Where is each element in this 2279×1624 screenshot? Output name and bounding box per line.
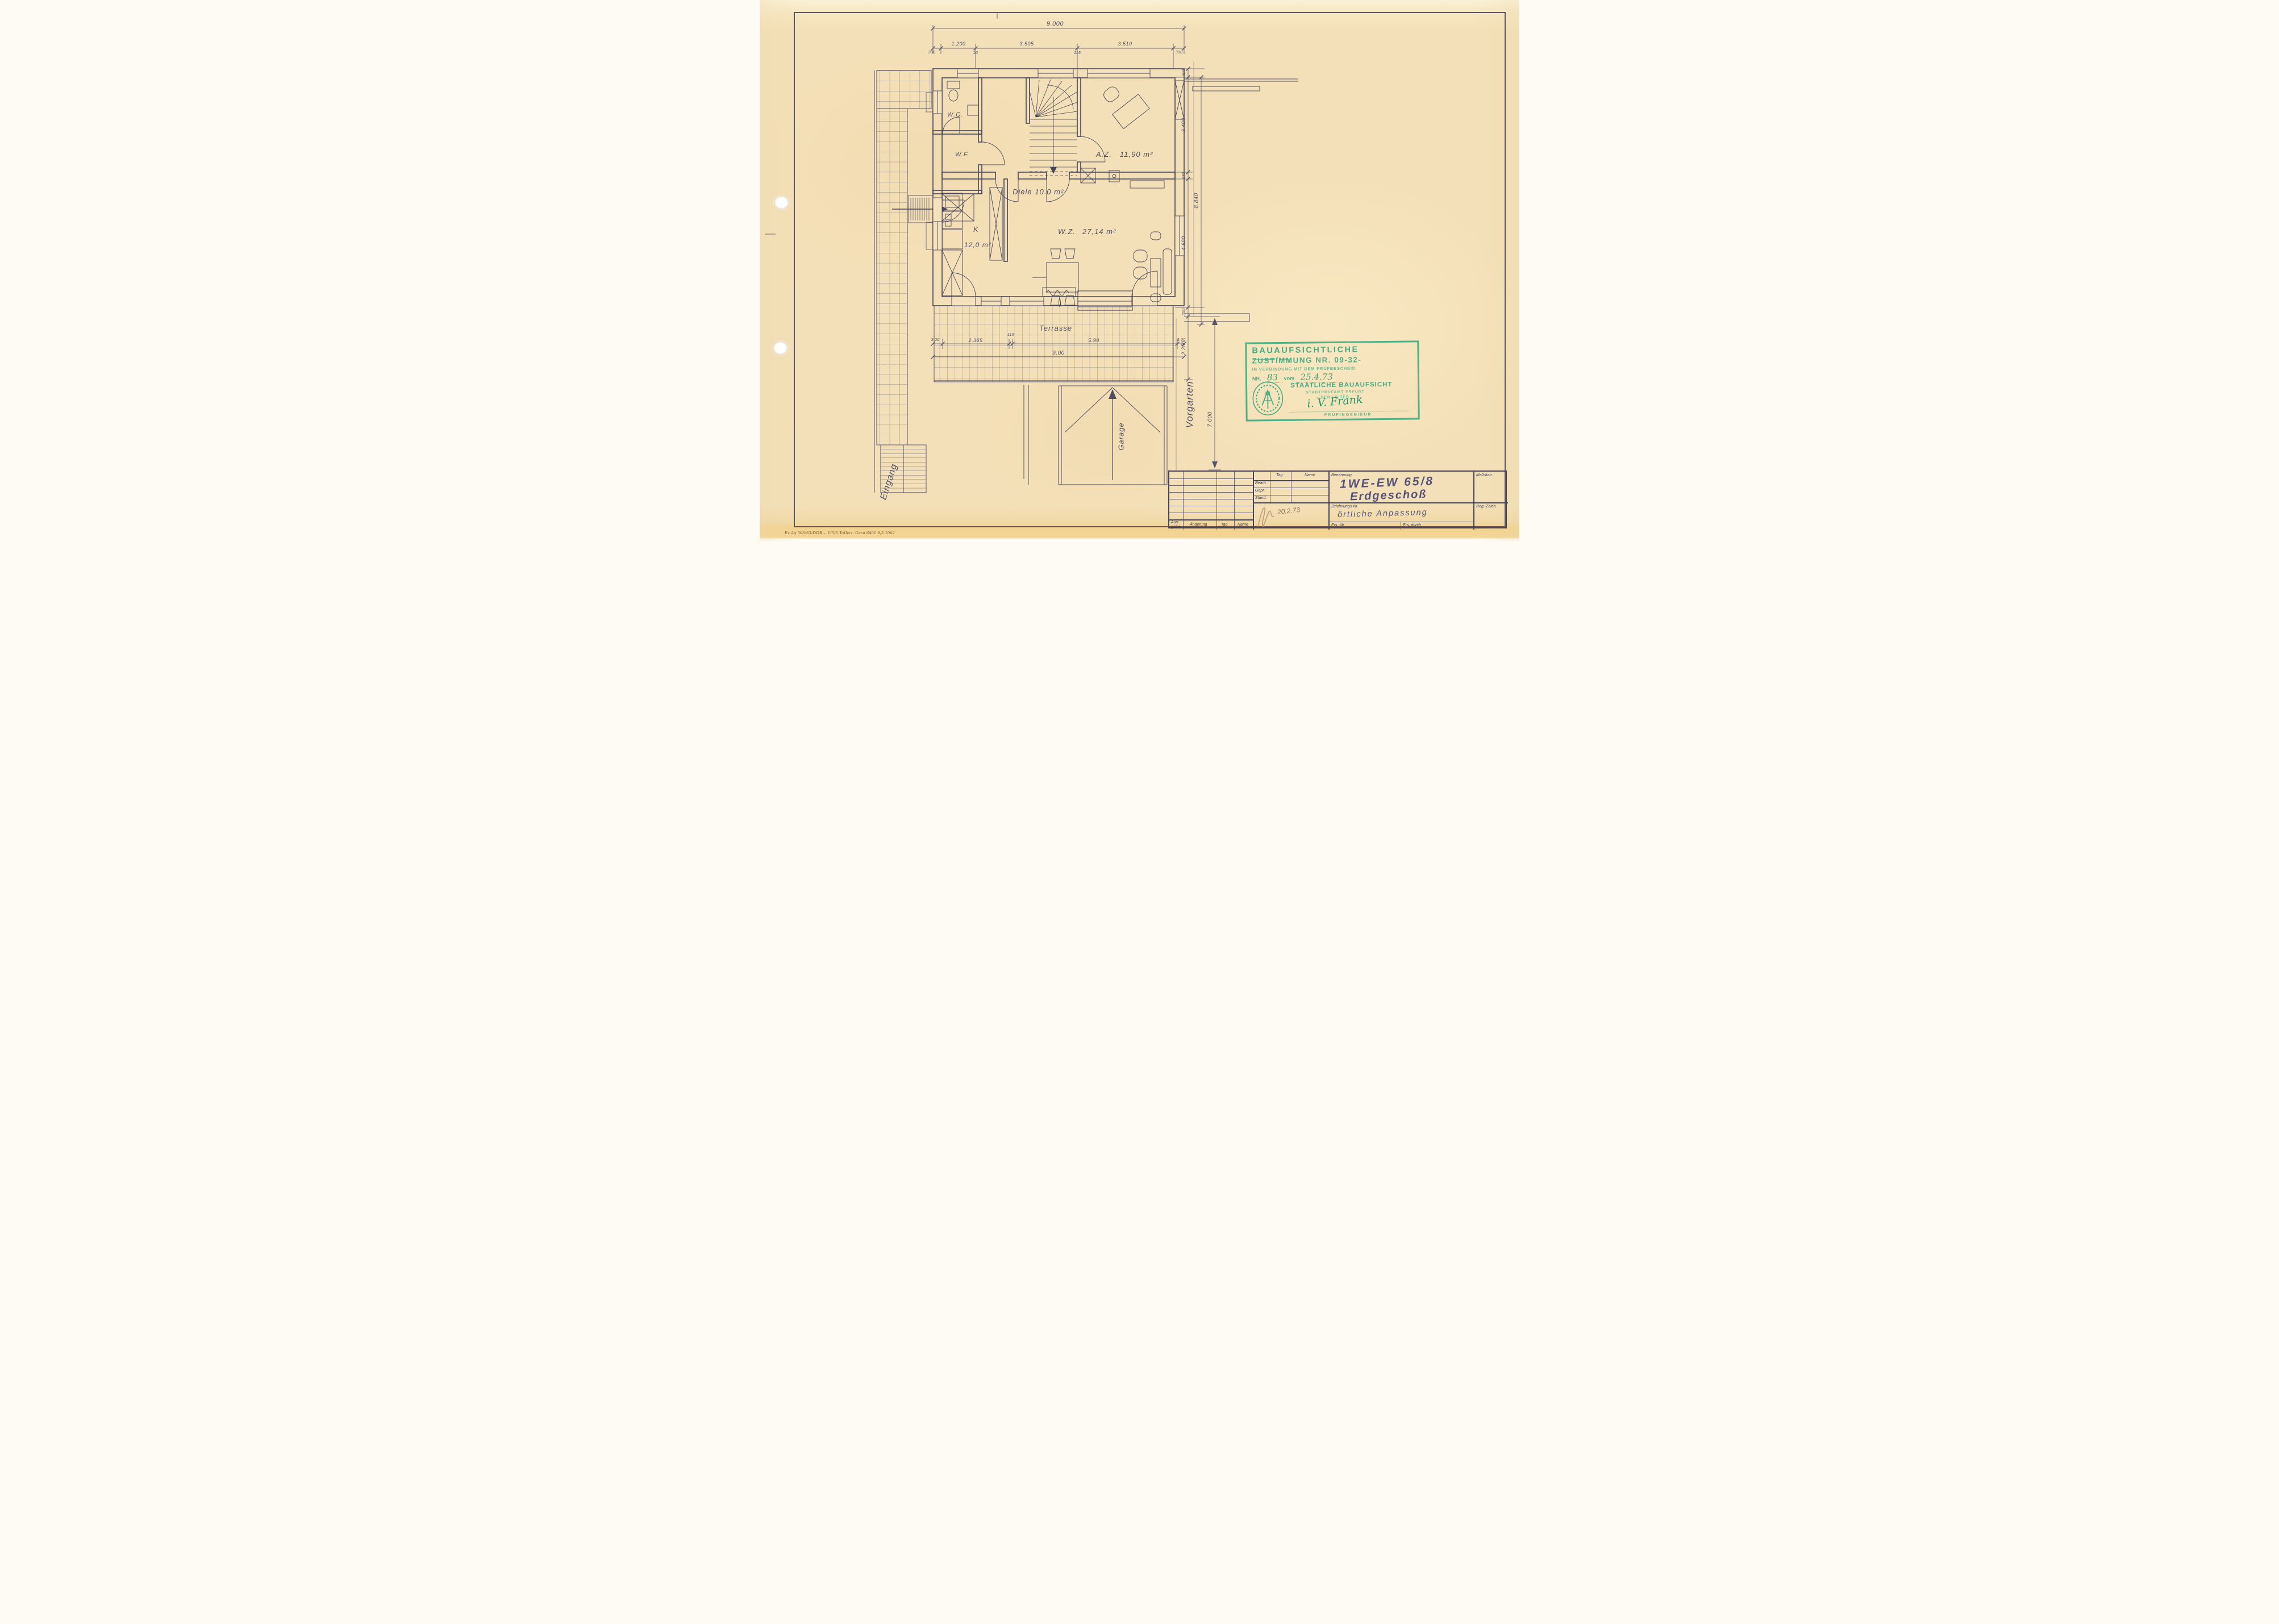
room-label-wf: W.F. <box>955 151 969 158</box>
room-label-wz: W.Z. <box>1058 227 1076 236</box>
tb-line <box>1169 478 1253 479</box>
dim-right-240: 240 <box>1182 172 1186 180</box>
tb-mid-name: Name <box>1305 473 1315 477</box>
room-label-diele: Diele 10.0 m² <box>1013 188 1064 196</box>
stamp-org: STAATLICHE BAUAUFSICHT <box>1290 381 1392 389</box>
stamp-signature: i. V. Frank <box>1307 393 1363 410</box>
tb-col-ausgabe: Aus- gabe <box>1171 520 1182 529</box>
room-label-garage: Garage <box>1117 422 1126 450</box>
tb-mid-tag: Tag <box>1276 473 1282 477</box>
tb-line <box>1401 522 1401 530</box>
dim-ter-2385: 2.385 <box>968 338 982 343</box>
dim-1200: 1.200 <box>951 41 965 47</box>
dim-top-left-300: 300 <box>928 51 936 55</box>
tb-line <box>1169 492 1253 493</box>
ddr-emblem-icon <box>1251 380 1285 417</box>
dim-right-300b: 300 <box>1182 309 1186 316</box>
tb-line <box>1253 495 1328 495</box>
tb-benennung-label: Benennung <box>1331 473 1352 477</box>
tb-reg-label: Reg.-Zeich. <box>1476 505 1497 509</box>
tb-row-stand: Stand. <box>1255 496 1266 500</box>
stamp-line1: BAUAUFSICHTLICHE <box>1252 345 1359 356</box>
tb-zeichnung-label: Zeichnungs-Nr. <box>1331 505 1359 509</box>
check-date-handwritten: 20.2.73 <box>1277 506 1300 516</box>
tb-line <box>1234 472 1235 530</box>
dim-right-300: 300 <box>1182 69 1186 77</box>
stamp-signature-line <box>1290 411 1409 413</box>
dim-2250: 2.250 <box>1181 340 1186 355</box>
tb-line <box>1270 472 1270 502</box>
room-label-terrasse: Terrasse <box>1039 324 1072 332</box>
room-label-az-area: 11,90 m² <box>1120 150 1153 159</box>
tb-line <box>1216 472 1217 530</box>
floor-plan-drawing <box>760 0 1519 542</box>
punch-hole <box>773 341 788 355</box>
room-label-wc: W.C. <box>947 111 963 118</box>
tb-line <box>1253 488 1328 488</box>
stamp-role: PRÜFINGENIEUR <box>1324 413 1372 417</box>
area-label-vorgarten: Vorgarten <box>1184 381 1195 428</box>
tb-col-name: Name <box>1238 523 1248 527</box>
tb-row-bearb: Bearb. <box>1255 481 1267 485</box>
tb-line <box>1330 522 1473 522</box>
tb-line <box>1169 485 1253 486</box>
dim-ter-590: 5.90 <box>1088 338 1099 343</box>
tb-line <box>1291 472 1291 502</box>
dim-7000: 7.000 <box>1207 411 1214 427</box>
punch-hole <box>774 195 789 210</box>
tb-ers-durch: Ers. durch <box>1403 523 1421 527</box>
stamp-line3: IN VERBINDUNG MIT DEM PRÜFBESCHEID <box>1252 366 1356 372</box>
tb-divider <box>1328 472 1330 530</box>
tb-line <box>1169 513 1253 513</box>
tb-row-gepr: Gepr. <box>1255 489 1265 493</box>
print-code: Ev Ag 305/63/DDR – V/5/6 Tollert, Gera 6… <box>785 530 895 535</box>
dim-right-total: 8.840 <box>1194 193 1200 209</box>
room-label-az: A.Z. <box>1096 150 1112 159</box>
tb-col-aenderung: Änderung <box>1190 523 1207 527</box>
dim-ter-115: 115 <box>1007 333 1014 337</box>
blueprint-sheet: 9.000 1.200 3.505 3.510 300 10 115 300 3… <box>760 0 1519 542</box>
dim-top-115: 115 <box>1074 51 1081 55</box>
dim-right-3400: 3.400 <box>1181 118 1186 132</box>
dim-top-total: 9.000 <box>1047 20 1064 27</box>
tb-line <box>1169 499 1253 499</box>
tb-ers-fuer: Ers. für <box>1331 523 1344 527</box>
dim-ter-left: 3.00 <box>931 338 940 342</box>
dim-3505: 3.505 <box>1019 41 1034 47</box>
tb-line <box>1169 506 1253 506</box>
room-label-wz-area: 27,14 m² <box>1082 227 1116 236</box>
dim-right-4600: 4.600 <box>1181 236 1186 250</box>
drawing-subtitle-handwritten: Erdgeschoß <box>1350 488 1427 504</box>
dim-3510: 3.510 <box>1118 41 1132 47</box>
room-label-kitchen-area: 12,0 m² <box>964 241 991 249</box>
tb-col-tag: Tag <box>1221 523 1227 527</box>
tb-divider <box>1473 472 1474 530</box>
room-label-kitchen: K <box>973 225 979 234</box>
approval-stamp: BAUAUFSICHTLICHE ZUSTIMMUNG NR. 09-32-――… <box>1245 340 1419 421</box>
dim-ter-total: 9.00 <box>1052 350 1064 356</box>
title-block: Aus- gabe Änderung Tag Name Tag Name Bea… <box>1168 470 1507 528</box>
dim-ter-right: 3.00 <box>1177 338 1186 342</box>
drawing-number-handwritten: örtliche Anpassung <box>1338 508 1428 519</box>
tb-massstab-label: Maßstab <box>1476 473 1491 477</box>
dim-top-right-300: 300 <box>1176 51 1183 55</box>
dim-top-10: 10 <box>973 51 978 55</box>
tb-line <box>1183 472 1184 530</box>
